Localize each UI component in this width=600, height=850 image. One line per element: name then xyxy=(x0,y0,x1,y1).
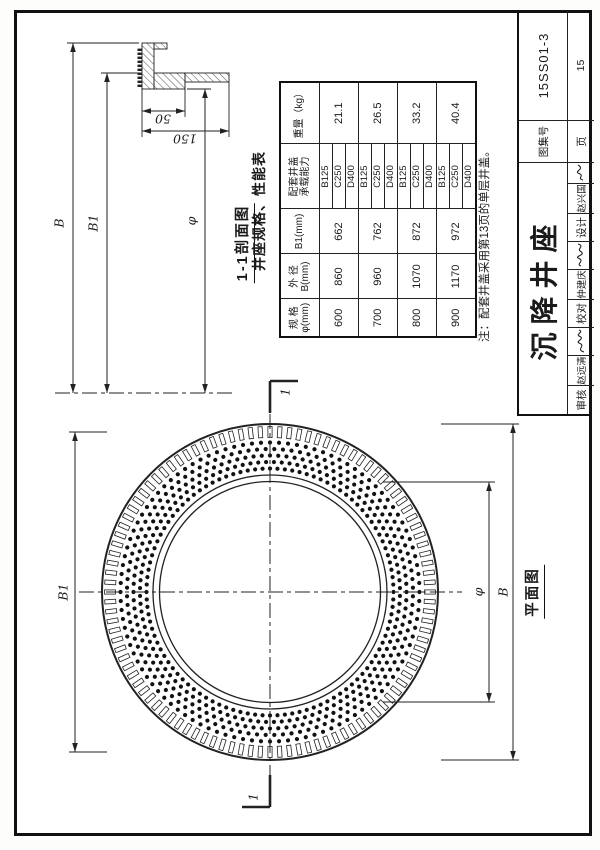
section-dim-b1-label: B1 xyxy=(86,214,101,231)
reviewer-label: 审核 xyxy=(568,386,594,414)
designer-signature xyxy=(568,163,594,184)
cut-mark-label-left: 1 xyxy=(246,793,261,801)
cell-load: C250 xyxy=(450,144,463,209)
cell-load: D400 xyxy=(463,144,477,209)
cell-od: 960 xyxy=(359,254,398,299)
atlas-number-value: 15SS01-3 xyxy=(519,11,567,121)
cell-b1: 662 xyxy=(320,209,359,254)
cell-load: D400 xyxy=(424,144,437,209)
reviewer-name: 赵远清 xyxy=(568,356,594,386)
table-row: 600 860 662 B125 21.1 xyxy=(320,82,333,337)
section-dim-50-label: 50 xyxy=(155,112,171,127)
checker-signature xyxy=(568,242,594,270)
col-od-header: 外 径B(mm) xyxy=(280,254,320,299)
cell-weight: 21.1 xyxy=(320,82,359,144)
cell-b1: 762 xyxy=(359,209,398,254)
spec-table-title: 井座规格、性能表 xyxy=(249,151,269,271)
atlas-number-label: 图集号 xyxy=(519,121,567,163)
plan-view-title: 平面图 xyxy=(521,565,545,619)
plan-dim-phi-label: φ xyxy=(471,588,486,597)
reviewer-signature xyxy=(568,328,594,356)
section-dim-150-label: 150 xyxy=(173,132,197,147)
table-note: 注：配套井盖采用第13页的单层井盖。 xyxy=(476,145,492,342)
section-dim-b-label: B xyxy=(52,218,67,227)
cell-weight: 33.2 xyxy=(398,82,437,144)
table-row: 700 960 762 B125 26.5 xyxy=(359,82,372,337)
page-number: 15 xyxy=(568,11,594,121)
checker-name: 仲建庆 xyxy=(568,270,594,300)
checker-label: 校对 xyxy=(568,300,594,328)
cut-mark-label-right: 1 xyxy=(278,388,293,396)
cell-load: C250 xyxy=(333,144,346,209)
title-block: 沉降井座 图集号 15SS01-3 审核 赵远清 校对 仲建庆 设计 赵兴国 xyxy=(517,11,591,416)
cell-load: C250 xyxy=(411,144,424,209)
cell-load: B125 xyxy=(359,144,372,209)
cell-b1: 972 xyxy=(437,209,477,254)
col-spec-header: 规 格φ(mm) xyxy=(280,299,320,337)
drawing-title: 沉降井座 xyxy=(519,163,567,414)
table-row: 900 1170 972 B125 40.4 xyxy=(437,82,450,337)
cell-spec: 600 xyxy=(320,299,359,337)
col-b1-header: B1(mm) xyxy=(280,209,320,254)
col-load-header: 配套井盖承载能力 xyxy=(280,144,320,209)
cell-load: B125 xyxy=(437,144,450,209)
cell-od: 1070 xyxy=(398,254,437,299)
cell-od: 1170 xyxy=(437,254,477,299)
cell-load: C250 xyxy=(372,144,385,209)
designer-name: 赵兴国 xyxy=(568,184,594,214)
drawing-sheet-frame: B B1 φ 50 150 1-1剖面图 B1 φ B 1 1 平面图 井座规格… xyxy=(14,10,592,836)
cell-load: B125 xyxy=(320,144,333,209)
table-row: 800 1070 872 B125 33.2 xyxy=(398,82,411,337)
cell-weight: 40.4 xyxy=(437,82,477,144)
cell-load: D400 xyxy=(346,144,359,209)
cell-od: 860 xyxy=(320,254,359,299)
cell-load: B125 xyxy=(398,144,411,209)
cell-b1: 872 xyxy=(398,209,437,254)
cell-spec: 900 xyxy=(437,299,477,337)
plan-dim-b-label: B xyxy=(496,587,511,596)
spec-table: 规 格φ(mm) 外 径B(mm) B1(mm) 配套井盖承载能力 重量（kg）… xyxy=(279,81,477,338)
spec-table-header-row: 规 格φ(mm) 外 径B(mm) B1(mm) 配套井盖承载能力 重量（kg） xyxy=(280,82,320,337)
page-label: 页 xyxy=(568,121,594,163)
plan-dim-b1-label: B1 xyxy=(56,583,71,600)
col-weight-header: 重量（kg） xyxy=(280,82,320,144)
section-dim-phi-label: φ xyxy=(184,217,199,226)
cell-weight: 26.5 xyxy=(359,82,398,144)
designer-label: 设计 xyxy=(568,214,594,242)
cell-load: D400 xyxy=(385,144,398,209)
scanned-drawing-page: B B1 φ 50 150 1-1剖面图 B1 φ B 1 1 平面图 井座规格… xyxy=(0,0,600,850)
cell-spec: 700 xyxy=(359,299,398,337)
cell-spec: 800 xyxy=(398,299,437,337)
